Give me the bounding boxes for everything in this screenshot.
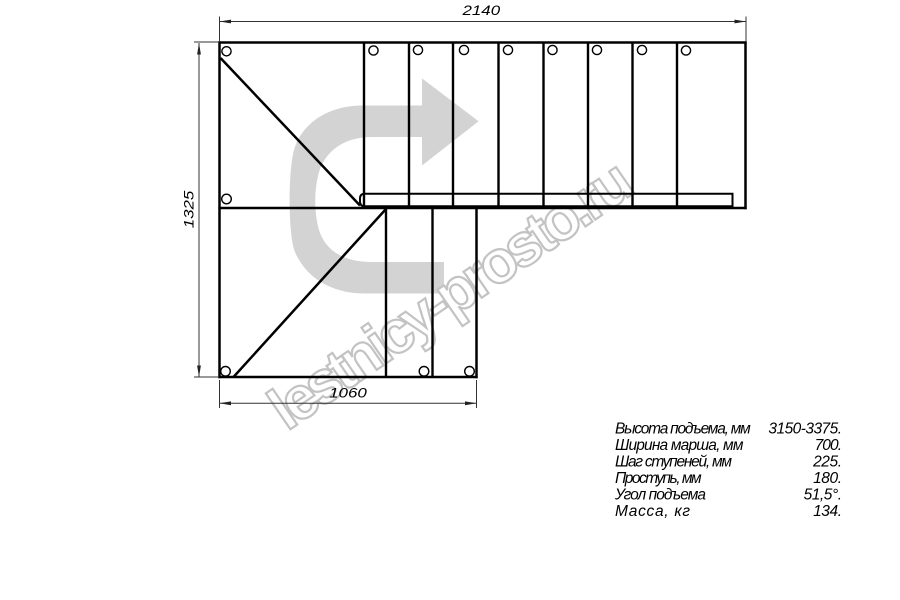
svg-text:225.: 225. (812, 454, 842, 471)
svg-text:51,5°.: 51,5°. (804, 487, 842, 504)
svg-text:Ширина марша, мм: Ширина марша, мм (615, 437, 744, 454)
svg-text:3150-3375.: 3150-3375. (768, 421, 842, 438)
svg-text:180.: 180. (813, 470, 842, 487)
svg-text:Шаг ступеней, мм: Шаг ступеней, мм (615, 454, 732, 471)
svg-text:Угол подъема: Угол подъема (614, 487, 706, 504)
svg-text:Высота подъема, мм: Высота подъема, мм (615, 421, 751, 438)
svg-text:2140: 2140 (461, 2, 500, 18)
svg-text:1325: 1325 (180, 190, 196, 228)
svg-text:Проступь, мм: Проступь, мм (615, 470, 702, 487)
svg-text:1060: 1060 (329, 385, 367, 401)
svg-text:700.: 700. (815, 437, 842, 454)
svg-text:Масса, кг: Масса, кг (615, 503, 690, 520)
svg-text:134.: 134. (813, 503, 842, 520)
